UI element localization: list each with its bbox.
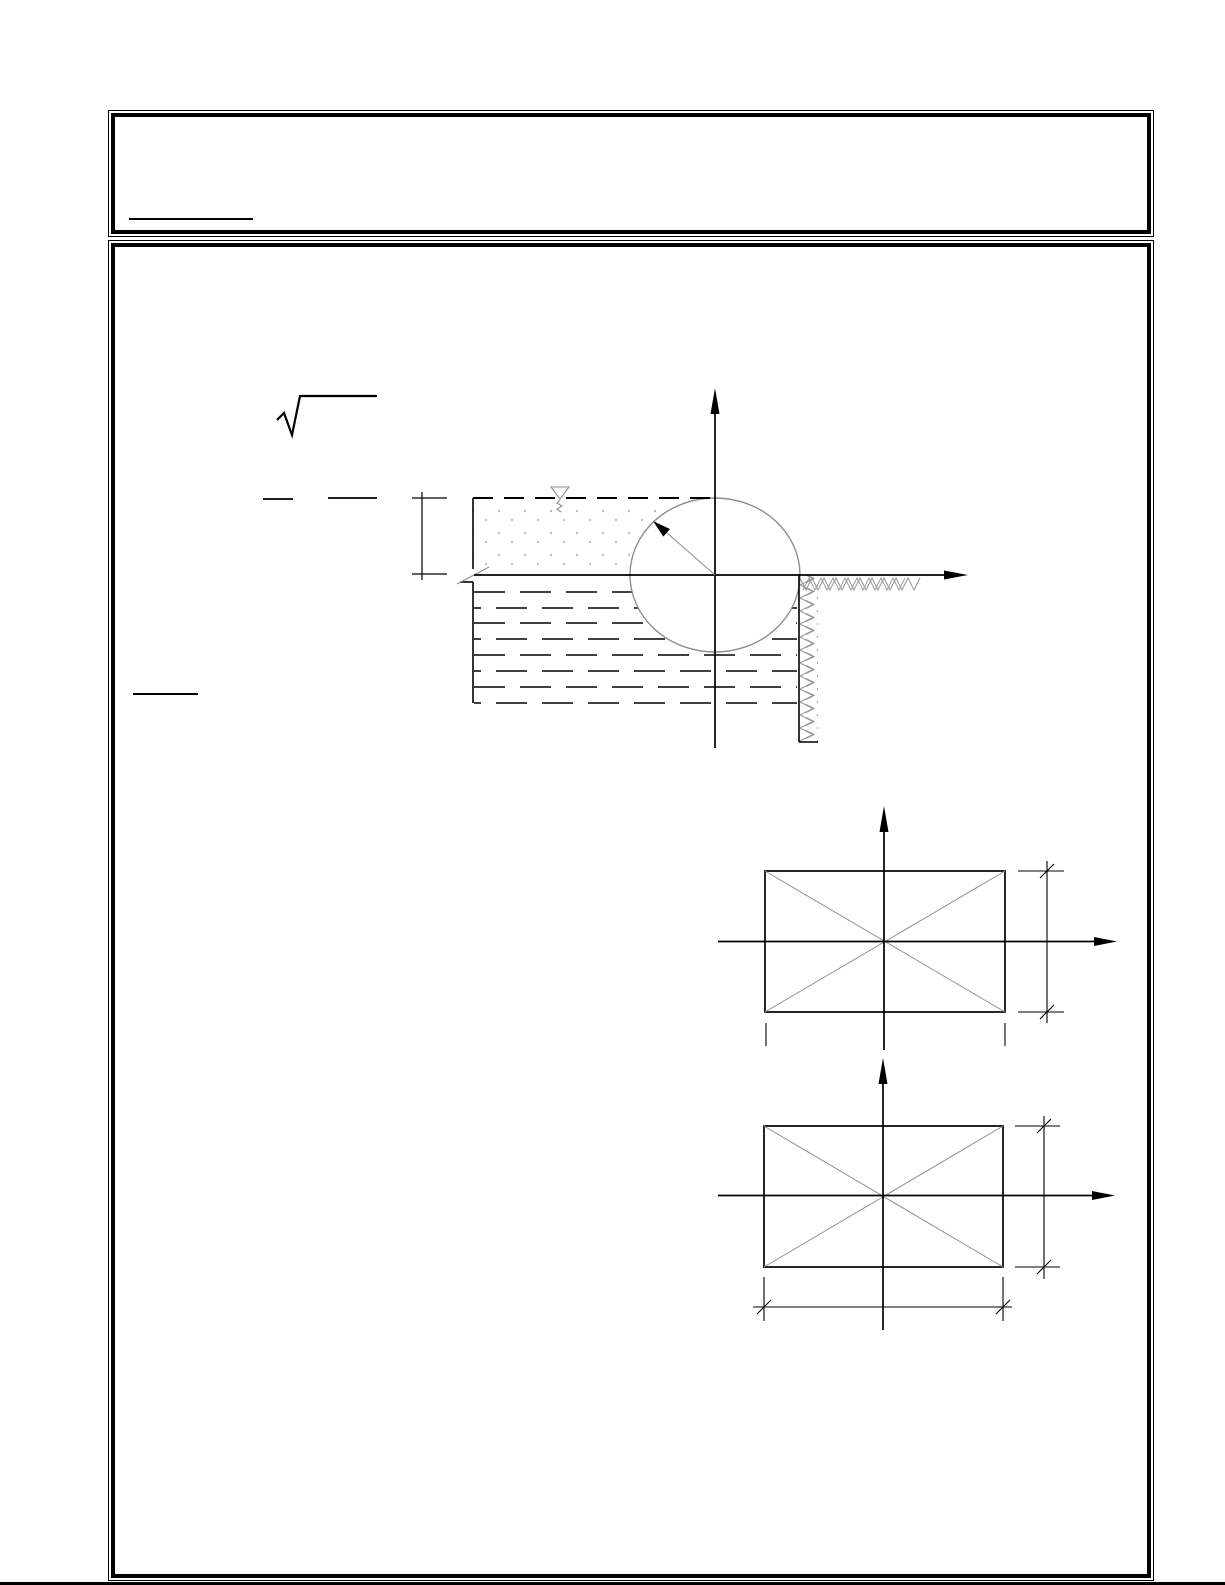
height-dimension-line [1015, 1116, 1060, 1279]
horizontal-axis-arrow [1092, 1191, 1115, 1200]
vertical-axis-arrow [879, 1058, 888, 1084]
document-page: { "page": { "kind": "scanned-document-pa… [0, 0, 1225, 1585]
figure-rectangle-section-1 [718, 806, 1117, 1050]
width-extension-ticks [766, 1023, 1005, 1046]
figure-hydrostatic-circular-gate [133, 388, 968, 748]
horizontal-axis-arrow [1094, 937, 1117, 946]
depth-dimension-bracket [412, 492, 447, 580]
horizontal-axis-arrow [944, 571, 968, 580]
retaining-wall-hatch [799, 575, 818, 742]
figures-layer [0, 0, 1225, 1585]
sqrt-radical-icon [277, 396, 377, 435]
figure-rectangle-section-2 [718, 1058, 1115, 1330]
vertical-axis-arrow [711, 388, 720, 414]
vertical-axis-arrow [880, 806, 889, 832]
